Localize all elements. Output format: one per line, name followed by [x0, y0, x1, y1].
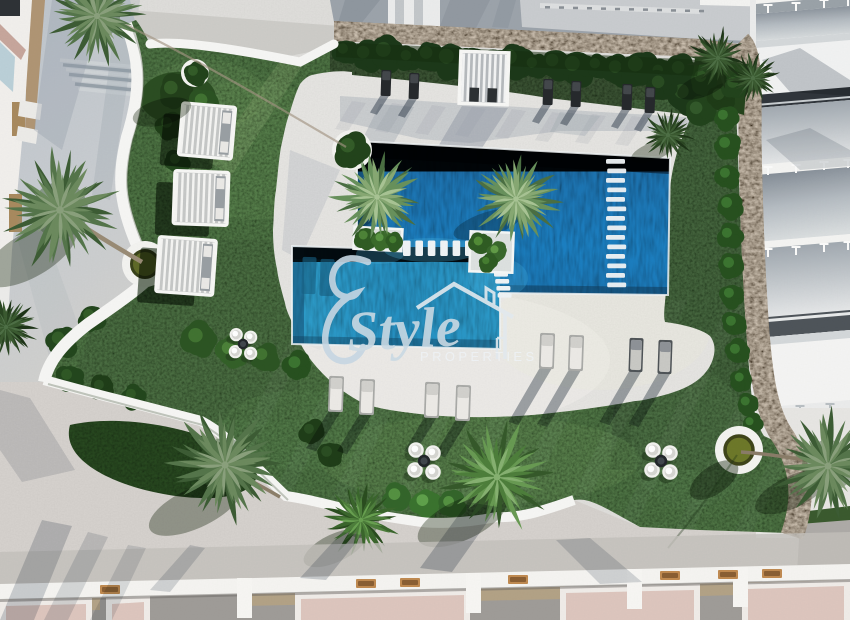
- svg-text:PROPERTIES: PROPERTIES: [420, 349, 538, 364]
